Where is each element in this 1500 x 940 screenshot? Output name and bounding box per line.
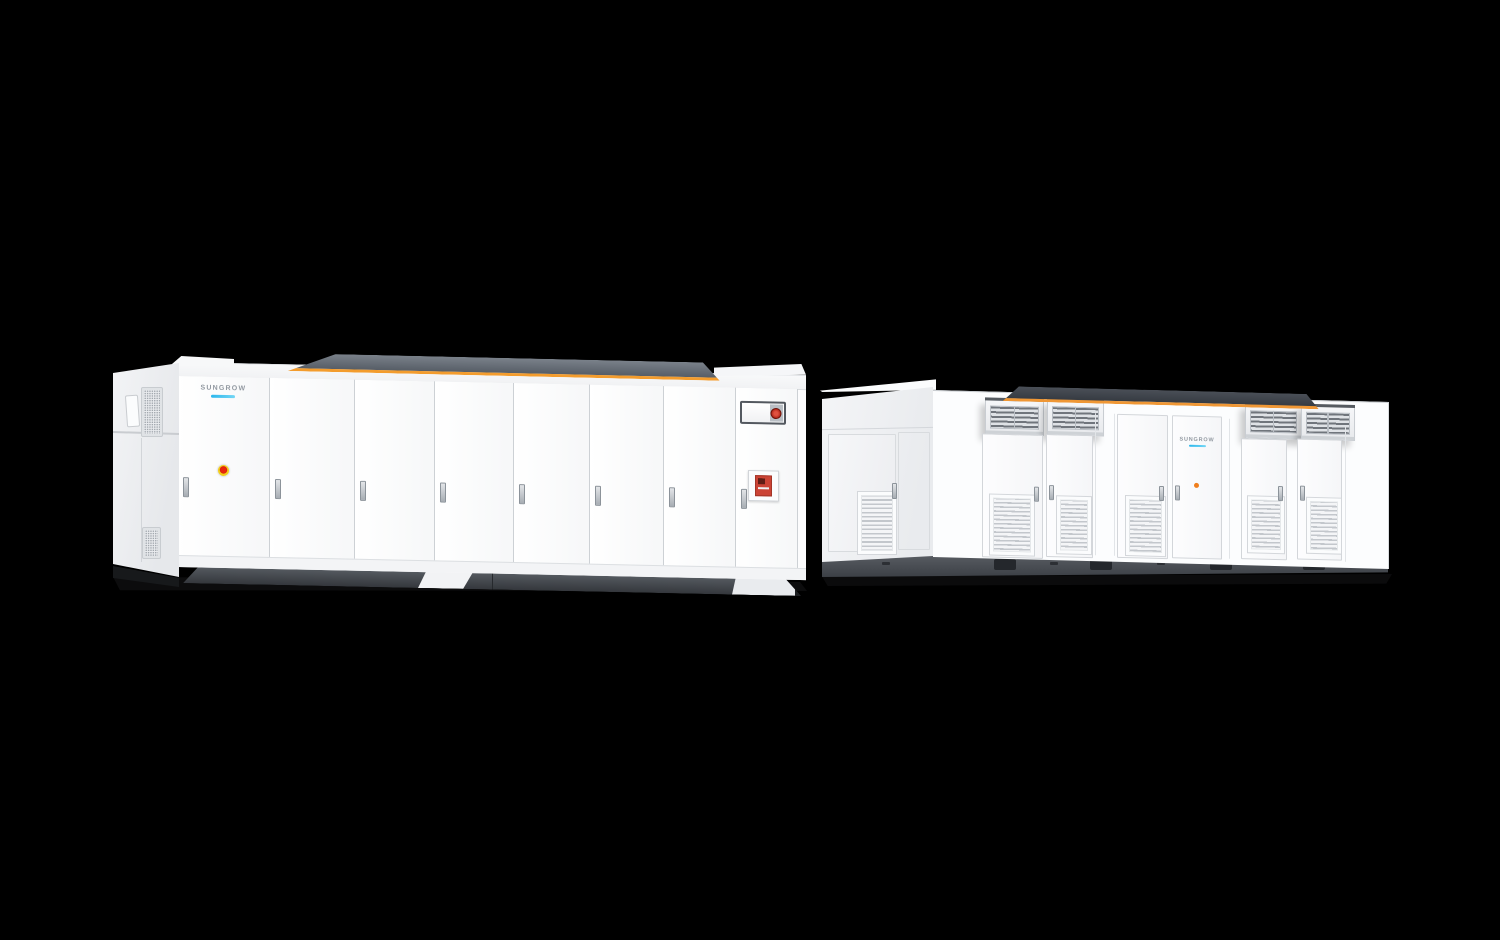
brand-underline <box>1189 445 1206 447</box>
skid-seam <box>492 573 493 590</box>
forklift-pocket <box>994 559 1016 570</box>
door-4 <box>435 381 514 563</box>
roof-vent-hood <box>1245 403 1302 439</box>
sungrow-wordmark: SUNGROW <box>1173 436 1221 447</box>
door-handle <box>1159 486 1164 501</box>
fire-alarm-panel-interior <box>755 475 772 496</box>
door-louver-vent <box>1057 496 1091 554</box>
door-handle <box>892 483 897 499</box>
door-louver-vent <box>1126 496 1165 556</box>
door-louver-vent <box>1307 498 1341 554</box>
station-front-face: SUNGROW <box>933 390 1389 569</box>
hood-louver <box>1014 406 1039 430</box>
hmi-display <box>740 401 786 425</box>
fire-alarm-panel <box>748 470 779 502</box>
station-door-3 <box>1117 414 1168 559</box>
station-side-face <box>820 380 934 582</box>
door-handle <box>595 486 601 506</box>
door-5 <box>514 383 590 565</box>
side-panel-seam <box>141 438 142 562</box>
door-louver-vent <box>990 494 1034 555</box>
side-access-plate <box>125 395 140 428</box>
door-handle <box>275 479 281 499</box>
roof-corner-cap <box>714 364 806 376</box>
side-door <box>898 432 930 550</box>
door-2 <box>270 378 355 560</box>
roof-corner-cap <box>172 356 234 366</box>
indicator-dot <box>1194 483 1199 488</box>
roof-vent-hood <box>985 398 1044 436</box>
hmi-red-button <box>771 407 782 418</box>
door-handle <box>669 487 675 507</box>
brand-underline <box>211 395 235 398</box>
sungrow-wordmark: SUNGROW <box>178 384 269 398</box>
brand-wordmark-text: SUNGROW <box>178 384 269 393</box>
station-door-5 <box>1241 438 1287 560</box>
door-7 <box>664 386 736 568</box>
door-handle <box>1049 485 1054 500</box>
hood-louver <box>1052 406 1076 430</box>
side-vent-grille <box>142 388 162 436</box>
door-8 <box>736 388 798 569</box>
container-side-face <box>112 358 180 593</box>
panel-seam <box>1229 419 1230 559</box>
station-door-4: SUNGROW <box>1172 415 1222 559</box>
door-handle <box>741 489 747 509</box>
side-vent-grille <box>143 528 160 558</box>
hood-louver <box>1273 411 1297 434</box>
door-handle <box>183 477 189 497</box>
station-door-2 <box>1046 434 1093 558</box>
skid-light-section <box>732 578 795 596</box>
skid-mark <box>882 562 890 565</box>
hood-louver <box>990 405 1015 429</box>
panel-seam <box>1114 414 1115 556</box>
hmi-button-area <box>770 404 783 421</box>
station-door-1 <box>982 433 1043 559</box>
canvas-background: SUNGROW <box>0 0 1500 940</box>
door-6 <box>590 385 664 567</box>
door-handle <box>519 484 525 504</box>
brand-wordmark-text: SUNGROW <box>1173 436 1221 443</box>
hood-louver <box>1328 412 1351 435</box>
door-row: SUNGROW <box>178 376 798 569</box>
side-fascia-line <box>822 427 933 430</box>
emergency-stop-button <box>218 465 229 476</box>
skid-mark <box>1050 562 1058 565</box>
door-handle <box>1175 485 1180 500</box>
door-handle <box>1278 486 1283 501</box>
door-handle <box>440 482 446 502</box>
station-door-6 <box>1297 439 1342 561</box>
hood-louver <box>1306 412 1329 435</box>
door-1: SUNGROW <box>178 376 270 558</box>
door-louver-vent <box>1248 496 1284 553</box>
container-front-face: SUNGROW <box>178 362 806 580</box>
skid-joint-wedge <box>418 571 473 589</box>
door-handle <box>1300 486 1305 501</box>
door-handle <box>1034 487 1039 502</box>
door-handle <box>360 481 366 501</box>
roof-vent-hood <box>1301 405 1355 441</box>
hood-louver <box>1250 410 1274 433</box>
panel-seam <box>1345 427 1346 562</box>
side-louver-vent <box>858 492 896 554</box>
panel-seam <box>1095 413 1096 555</box>
door-3 <box>355 380 435 562</box>
